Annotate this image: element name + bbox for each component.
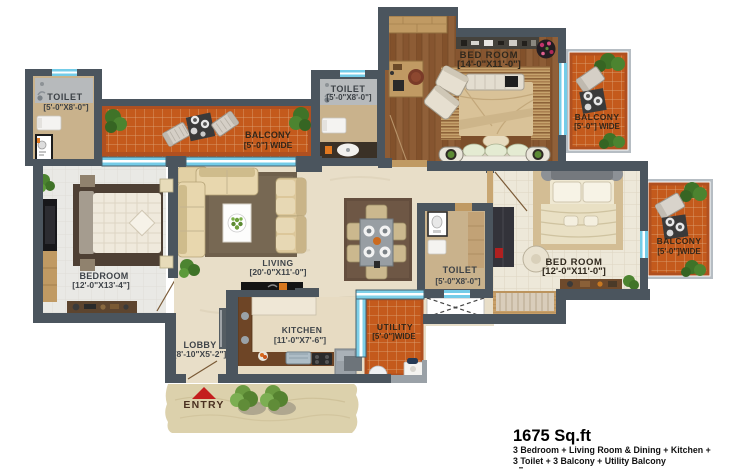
svg-text:[5'-0"X8'-0"]: [5'-0"X8'-0"]: [43, 103, 89, 112]
svg-text:[5'-0"X8'-0"]: [5'-0"X8'-0"]: [326, 93, 372, 102]
svg-text:[5'-0"X8'-0"]: [5'-0"X8'-0"]: [435, 277, 481, 286]
svg-text:1675 Sq.ft: 1675 Sq.ft: [513, 427, 591, 445]
svg-text:UTILITY: UTILITY: [377, 322, 413, 332]
svg-text:BALCONY: BALCONY: [575, 112, 620, 122]
svg-text:BALCONY: BALCONY: [657, 236, 702, 246]
svg-text:[5'-0"]WIDE: [5'-0"]WIDE: [657, 247, 701, 256]
svg-text:[20'-0"X11'-0"]: [20'-0"X11'-0"]: [250, 267, 307, 277]
svg-text:[11'-0"X7'-6"]: [11'-0"X7'-6"]: [274, 335, 326, 345]
svg-text:KITCHEN: KITCHEN: [282, 325, 323, 335]
svg-text:[5'-0"] WIDE: [5'-0"] WIDE: [574, 122, 620, 131]
svg-text:[12'-0"X11'-0"]: [12'-0"X11'-0"]: [542, 266, 606, 277]
svg-text:[5'-0"] WIDE: [5'-0"] WIDE: [244, 140, 293, 150]
svg-text:TOILET: TOILET: [47, 92, 82, 102]
svg-text:BALCONY: BALCONY: [245, 130, 291, 140]
svg-text:[12'-0"X13'-4"]: [12'-0"X13'-4"]: [72, 280, 130, 290]
svg-text:3 Bedroom + Living Room & Dini: 3 Bedroom + Living Room & Dining + Kitch…: [513, 445, 711, 455]
svg-text:[5'-0"]WIDE: [5'-0"]WIDE: [372, 332, 416, 341]
svg-text:[14'-0"X11'-0"]: [14'-0"X11'-0"]: [457, 59, 521, 70]
svg-text:3 Toilet + 3 Balcony + Utility: 3 Toilet + 3 Balcony + Utility Balcony: [513, 456, 666, 466]
svg-text:[8'-10"X5'-2"]: [8'-10"X5'-2"]: [174, 349, 227, 359]
svg-text:ENTRY: ENTRY: [183, 399, 224, 411]
svg-text:TOILET: TOILET: [443, 265, 478, 275]
